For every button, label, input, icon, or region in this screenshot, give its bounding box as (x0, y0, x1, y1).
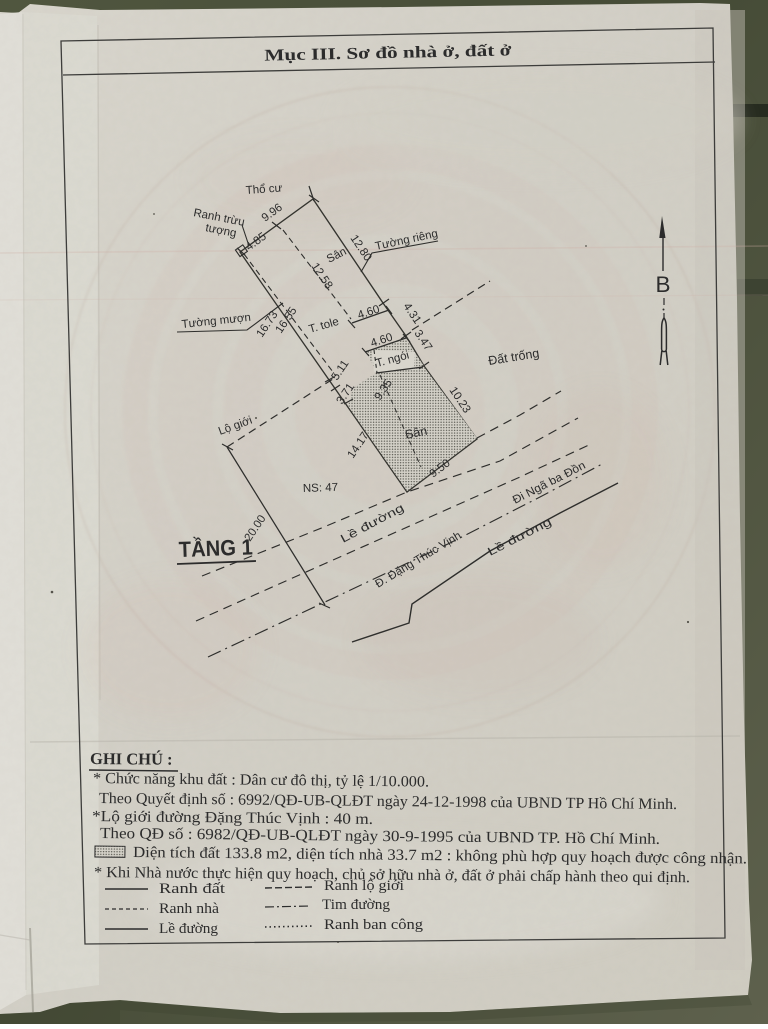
svg-text:Lề đường: Lề đường (159, 921, 218, 937)
svg-text:GHI CHÚ :: GHI CHÚ : (90, 749, 173, 769)
svg-text:Ranh đất: Ranh đất (159, 881, 225, 897)
svg-text:* Chức năng khu đất : Dân cư đ: * Chức năng khu đất : Dân cư đô thị, tỷ … (93, 770, 429, 791)
svg-text:NS: 47: NS: 47 (303, 482, 339, 495)
svg-text:B: B (655, 272, 670, 297)
svg-text:Ranh nhà: Ranh nhà (159, 901, 220, 917)
svg-text:TẦNG 1: TẦNG 1 (178, 534, 253, 562)
svg-text:Tim đường: Tim đường (322, 897, 390, 913)
svg-text:Thổ cư: Thổ cư (245, 182, 283, 197)
svg-text:Ranh ban công: Ranh ban công (324, 917, 423, 933)
svg-text:Ranh lộ giới: Ranh lộ giới (324, 878, 404, 894)
